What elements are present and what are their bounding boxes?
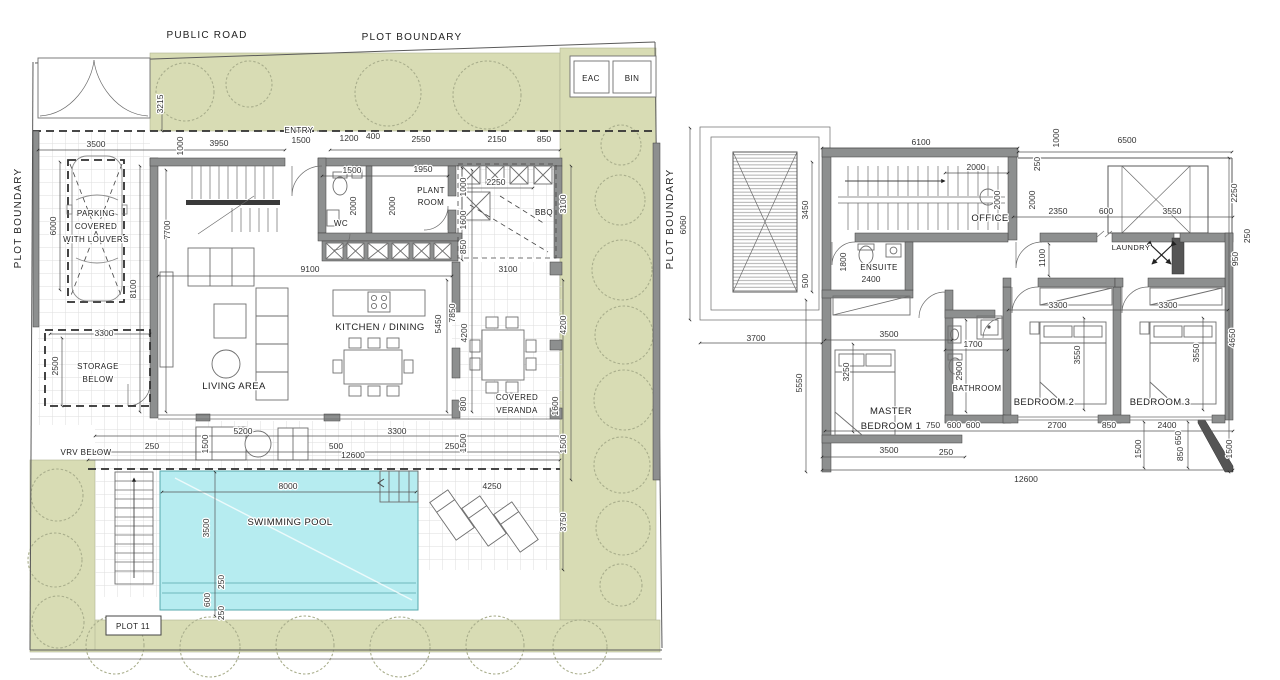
- dim: 8100: [128, 279, 138, 298]
- stair-ground: [186, 166, 280, 234]
- parking-label: PARKING: [77, 209, 115, 218]
- dim: 2000: [387, 196, 397, 215]
- dim: 1950: [414, 164, 433, 174]
- dim: 2700: [1048, 420, 1067, 430]
- dim: 250: [939, 447, 953, 457]
- public-road-label: PUBLIC ROAD: [167, 30, 248, 41]
- dim: 3550: [1191, 343, 1201, 362]
- dim: 6000: [48, 216, 58, 235]
- dim: 650: [1173, 431, 1183, 445]
- floor-plan-canvas: 3215 3500 1000 3950 1500 1200 400 2550 2…: [0, 0, 1280, 680]
- dim: 600: [947, 420, 961, 430]
- dim: 2000: [348, 196, 358, 215]
- dim: 2000: [992, 190, 1002, 209]
- dim: 7700: [162, 220, 172, 239]
- dim: 2350: [1049, 206, 1068, 216]
- bathroom-label: BATHROOM: [953, 384, 1002, 393]
- dim: 2150: [488, 134, 507, 144]
- dim: 3300: [1159, 300, 1178, 310]
- dim: 3300: [1049, 300, 1068, 310]
- laundry-label: LAUNDRY: [1112, 243, 1151, 252]
- entrance-gate: [38, 58, 150, 118]
- ensuite-fixtures: [858, 244, 901, 264]
- dim: 2500: [50, 356, 60, 375]
- dim: 1200: [340, 133, 359, 143]
- dim: 850: [537, 134, 551, 144]
- dim: 850: [1102, 420, 1116, 430]
- master-bedroom-label: MASTER: [870, 406, 912, 417]
- master-bedroom-label: BEDROOM 1: [861, 421, 922, 432]
- covered-veranda-label: VERANDA: [496, 406, 538, 415]
- dim: 250: [216, 606, 226, 620]
- dining-set: [333, 338, 413, 396]
- dim: 3450: [800, 200, 810, 219]
- storage-below-label: STORAGE: [77, 362, 119, 371]
- covered-veranda-label: COVERED: [496, 393, 538, 402]
- dim: 3750: [558, 512, 568, 531]
- dim: 4250: [483, 481, 502, 491]
- dim: 950: [1230, 252, 1240, 266]
- dim: 750: [926, 420, 940, 430]
- dim: 12600: [1014, 474, 1038, 484]
- bbq-label: BBQ: [535, 208, 553, 217]
- dim: 3500: [880, 329, 899, 339]
- dim: 2250: [487, 177, 506, 187]
- dim: 800: [458, 397, 468, 411]
- vrv-below-label: VRV BELOW: [60, 448, 111, 457]
- dim: 7850: [447, 303, 457, 322]
- dim: 4650: [1227, 328, 1237, 347]
- bed-3: [1140, 322, 1216, 404]
- dim: 5450: [433, 314, 443, 333]
- bin-label: BIN: [625, 74, 640, 83]
- roof-void-hatch: [700, 127, 830, 320]
- dim: 3100: [499, 264, 518, 274]
- ensuite-label: ENSUITE: [860, 263, 897, 272]
- first-floor-plan: 6060 6100 3450 500 2000 250 1000 6500 20…: [678, 127, 1252, 484]
- dim: 2400: [1158, 420, 1177, 430]
- dim: 500: [800, 274, 810, 288]
- bedroom3-label: BEDROOM 3: [1130, 397, 1191, 408]
- dim: 3550: [1072, 345, 1082, 364]
- ground-floor-plan: 3215 3500 1000 3950 1500 1200 400 2550 2…: [13, 30, 676, 677]
- dim: 6100: [912, 137, 931, 147]
- kitchen-island: [333, 290, 425, 316]
- dim: 1500: [200, 434, 210, 453]
- eac-label: EAC: [582, 74, 600, 83]
- dim: 1500: [458, 433, 468, 452]
- laundry-chute-icon: [1152, 246, 1171, 264]
- dim: 1500: [343, 165, 362, 175]
- dim: 1000: [175, 136, 185, 155]
- bed-2: [1030, 322, 1106, 404]
- plant-room-label: PLANT: [417, 186, 445, 195]
- dim: 250: [145, 441, 159, 451]
- dim: 6500: [1118, 135, 1137, 145]
- dim: 3250: [841, 362, 851, 381]
- dim: 1000: [458, 177, 468, 196]
- living-furniture: [160, 248, 288, 400]
- plot-boundary-label-top: PLOT BOUNDARY: [362, 32, 463, 43]
- dim: 3500: [201, 518, 211, 537]
- dim: 3550: [1163, 206, 1182, 216]
- plot-boundary-label-left: PLOT BOUNDARY: [13, 168, 24, 269]
- dim: 1700: [964, 339, 983, 349]
- plot-boundary-label-right: PLOT BOUNDARY: [665, 169, 676, 270]
- dim: 600: [1099, 206, 1113, 216]
- dim: 2000: [1027, 190, 1037, 209]
- dim: 12600: [341, 450, 365, 460]
- plant-room-label: ROOM: [418, 198, 445, 207]
- dim: 1600: [550, 396, 560, 415]
- dim: 250: [216, 575, 226, 589]
- dim: 2550: [412, 134, 431, 144]
- dim: 400: [366, 131, 380, 141]
- bedroom2-label: BEDROOM 2: [1014, 397, 1075, 408]
- dim: 3300: [388, 426, 407, 436]
- dim: 1600: [458, 210, 468, 229]
- dim: 1000: [1051, 128, 1061, 147]
- wc-label: WC: [334, 219, 348, 228]
- dim: 1500: [1133, 439, 1143, 458]
- dim: 3500: [880, 445, 899, 455]
- parking-label: COVERED: [75, 222, 117, 231]
- dim: 1100: [1037, 249, 1047, 268]
- dim: 8000: [279, 481, 298, 491]
- dim: 600: [966, 420, 980, 430]
- dim: 2000: [967, 162, 986, 172]
- dim: 2250: [1229, 183, 1239, 202]
- dim: 3950: [210, 138, 229, 148]
- dim: 3215: [155, 94, 165, 113]
- swimming-pool-label: SWIMMING POOL: [248, 517, 333, 528]
- dim: 3500: [87, 139, 106, 149]
- dim: 3100: [558, 194, 568, 213]
- kitchen-cabinets: [322, 241, 458, 261]
- plot-11-label: PLOT 11: [116, 622, 150, 631]
- dim: 4200: [459, 323, 469, 342]
- dim: 850: [1175, 447, 1185, 461]
- dim: 1500: [558, 434, 568, 453]
- dim: 250: [1242, 229, 1252, 243]
- dim: 250: [1032, 157, 1042, 171]
- dim: 4200: [558, 315, 568, 334]
- dim: 250: [445, 441, 459, 451]
- dim: 6060: [678, 215, 688, 234]
- office-label: OFFICE: [971, 213, 1008, 224]
- living-area-label: LIVING AREA: [202, 381, 266, 392]
- dim: 1800: [838, 252, 848, 271]
- entry-label: ENTRY: [285, 126, 314, 135]
- dim: 1500: [1224, 439, 1234, 458]
- parking-label: WITH LOUVERS: [63, 235, 129, 244]
- floor-plan-page: 3215 3500 1000 3950 1500 1200 400 2550 2…: [0, 0, 1280, 680]
- dim: 1500: [292, 135, 311, 145]
- dim: 5200: [234, 426, 253, 436]
- dim: 3700: [747, 333, 766, 343]
- storage-below-label: BELOW: [83, 375, 114, 384]
- dim: 2900: [954, 361, 964, 380]
- dim: 600: [202, 593, 212, 607]
- roof-terrace: [1018, 158, 1232, 236]
- kitchen-dining-label: KITCHEN / DINING: [335, 322, 424, 333]
- dim: 2400: [862, 274, 881, 284]
- dim: 850: [458, 240, 468, 254]
- dim: 5550: [794, 373, 804, 392]
- dim: 3300: [95, 328, 114, 338]
- dim: 9100: [301, 264, 320, 274]
